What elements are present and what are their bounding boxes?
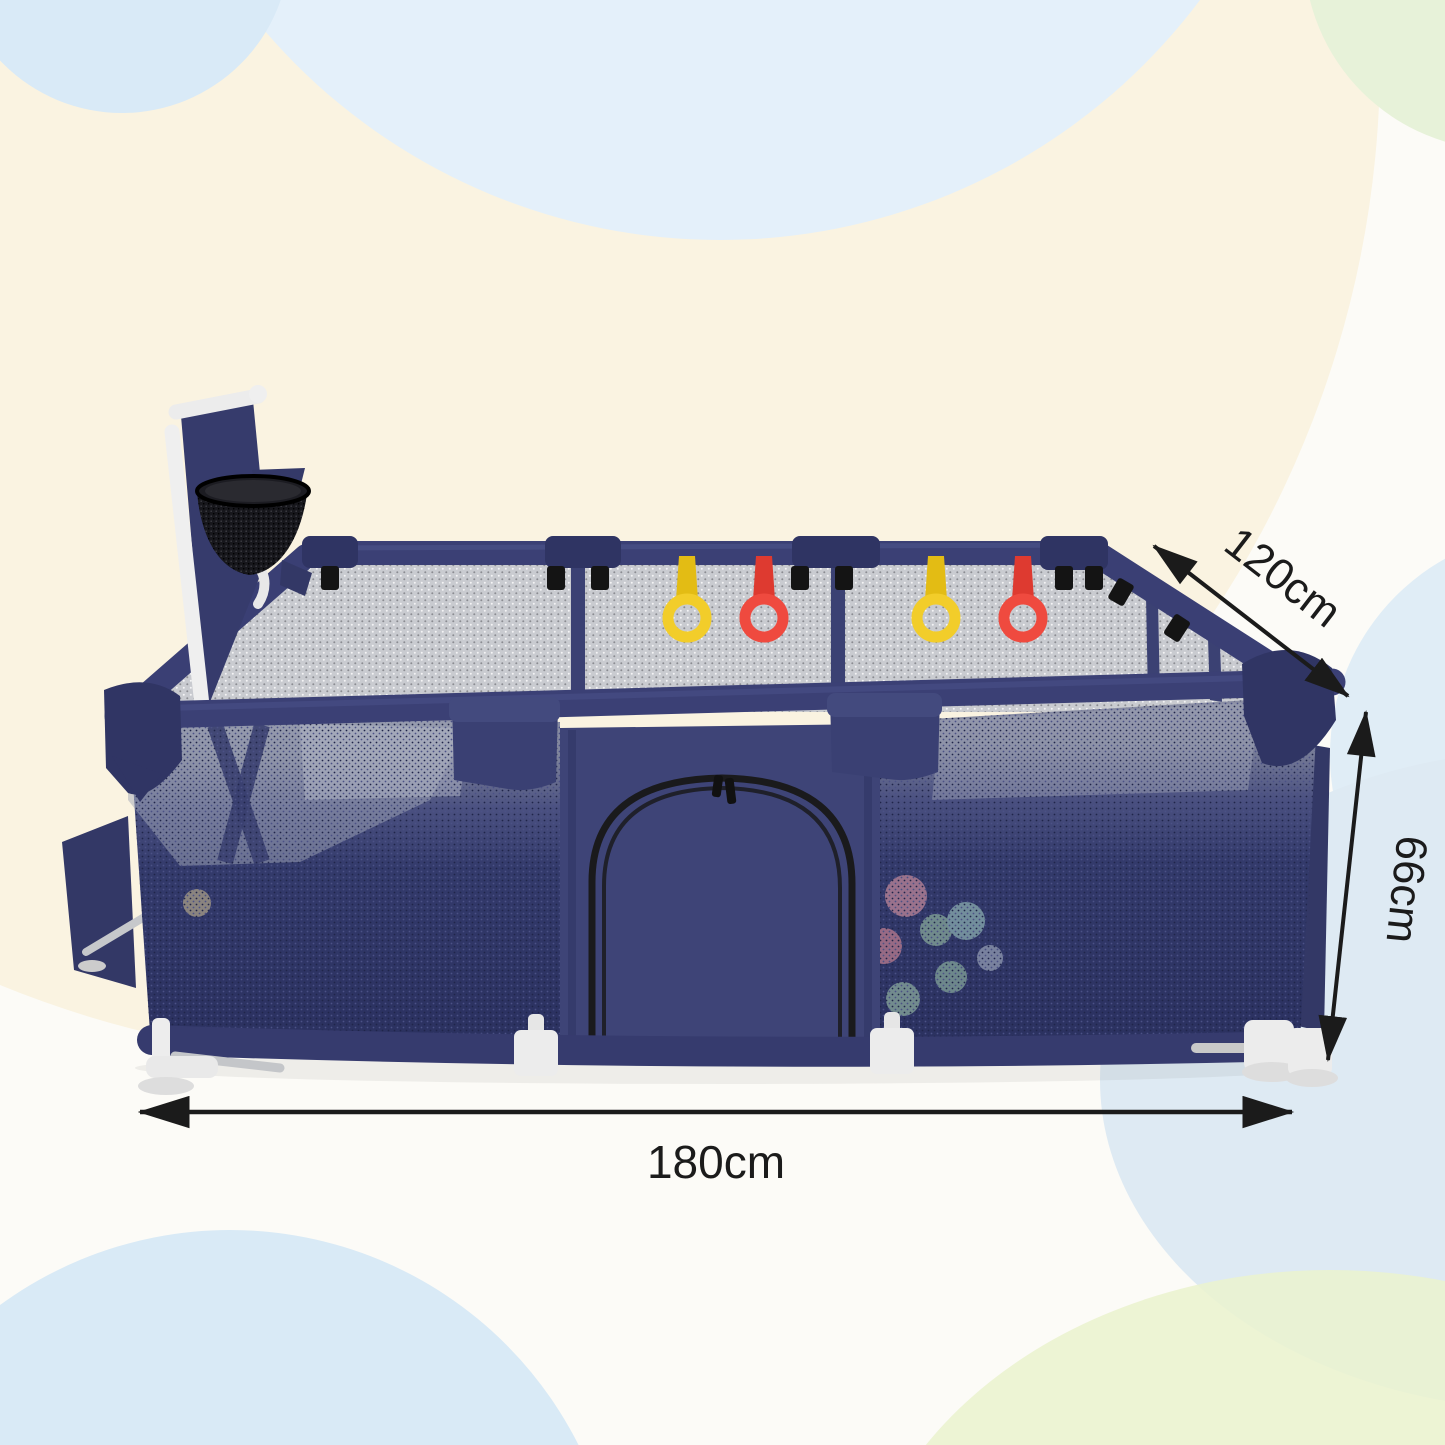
product-image: 120cm 66cm 180cm	[0, 0, 1445, 1445]
ring-strap	[925, 556, 947, 600]
bottom-rail	[152, 1040, 1298, 1052]
corner-foot	[1288, 1028, 1332, 1076]
velcro-tab	[591, 566, 609, 590]
rail-sleeve	[545, 536, 621, 568]
velcro-tab	[547, 566, 565, 590]
door-panel	[560, 724, 880, 1046]
ring-strap	[1012, 556, 1034, 600]
ring-strap	[753, 556, 775, 600]
product-image-canvas: 120cm 66cm 180cm	[0, 0, 1445, 1445]
rail-sleeve	[302, 536, 358, 568]
rail-sleeve	[792, 536, 880, 568]
velcro-tab	[835, 566, 853, 590]
velcro-tab	[1085, 566, 1103, 590]
hoop-cap	[249, 385, 267, 403]
left-foot-base	[78, 960, 106, 972]
rail-sleeve	[1040, 536, 1108, 570]
velcro-tab	[321, 566, 339, 590]
width-dimension-label: 180cm	[647, 1136, 785, 1188]
velcro-tab	[791, 566, 809, 590]
ring-strap	[676, 556, 698, 600]
velcro-tab	[1055, 566, 1073, 590]
